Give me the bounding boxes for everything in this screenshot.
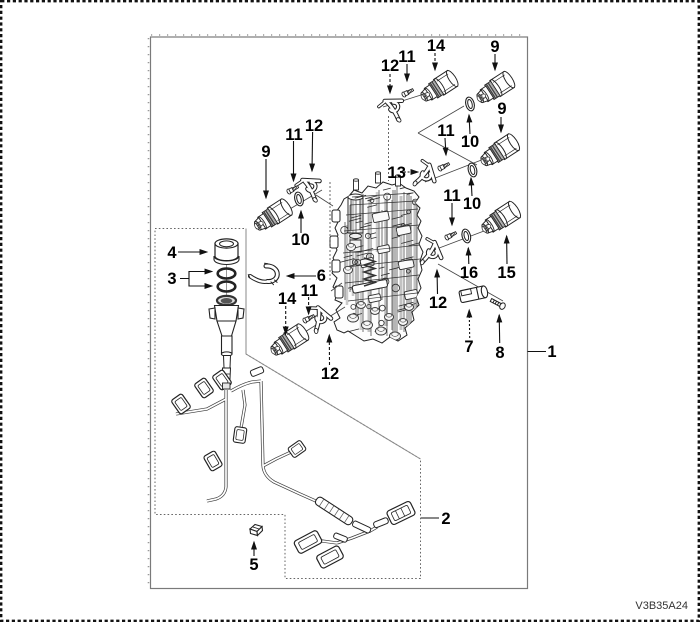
svg-text:10: 10 — [463, 195, 481, 213]
svg-text:12: 12 — [305, 117, 323, 135]
svg-text:1: 1 — [547, 343, 556, 361]
svg-text:9: 9 — [497, 100, 506, 118]
svg-text:12: 12 — [321, 365, 339, 383]
svg-text:11: 11 — [437, 122, 454, 140]
svg-text:8: 8 — [495, 344, 504, 362]
svg-text:3: 3 — [167, 270, 176, 288]
svg-text:11: 11 — [443, 187, 460, 205]
svg-text:16: 16 — [460, 264, 478, 282]
svg-text:14: 14 — [427, 37, 446, 55]
svg-text:9: 9 — [490, 38, 499, 56]
svg-text:9: 9 — [261, 143, 270, 161]
svg-text:11: 11 — [398, 48, 415, 66]
svg-text:11: 11 — [285, 126, 302, 144]
svg-text:V3B35A24: V3B35A24 — [635, 600, 688, 612]
svg-text:14: 14 — [278, 290, 297, 308]
svg-text:15: 15 — [497, 264, 515, 282]
svg-text:5: 5 — [249, 556, 258, 574]
svg-text:10: 10 — [291, 231, 309, 249]
svg-text:2: 2 — [441, 510, 450, 528]
svg-text:13: 13 — [388, 164, 406, 182]
svg-text:7: 7 — [464, 338, 473, 356]
svg-text:11: 11 — [301, 282, 318, 300]
svg-text:12: 12 — [381, 57, 399, 75]
svg-text:12: 12 — [429, 294, 447, 312]
svg-text:4: 4 — [167, 244, 177, 262]
svg-text:10: 10 — [461, 133, 479, 151]
svg-text:6: 6 — [317, 267, 326, 285]
